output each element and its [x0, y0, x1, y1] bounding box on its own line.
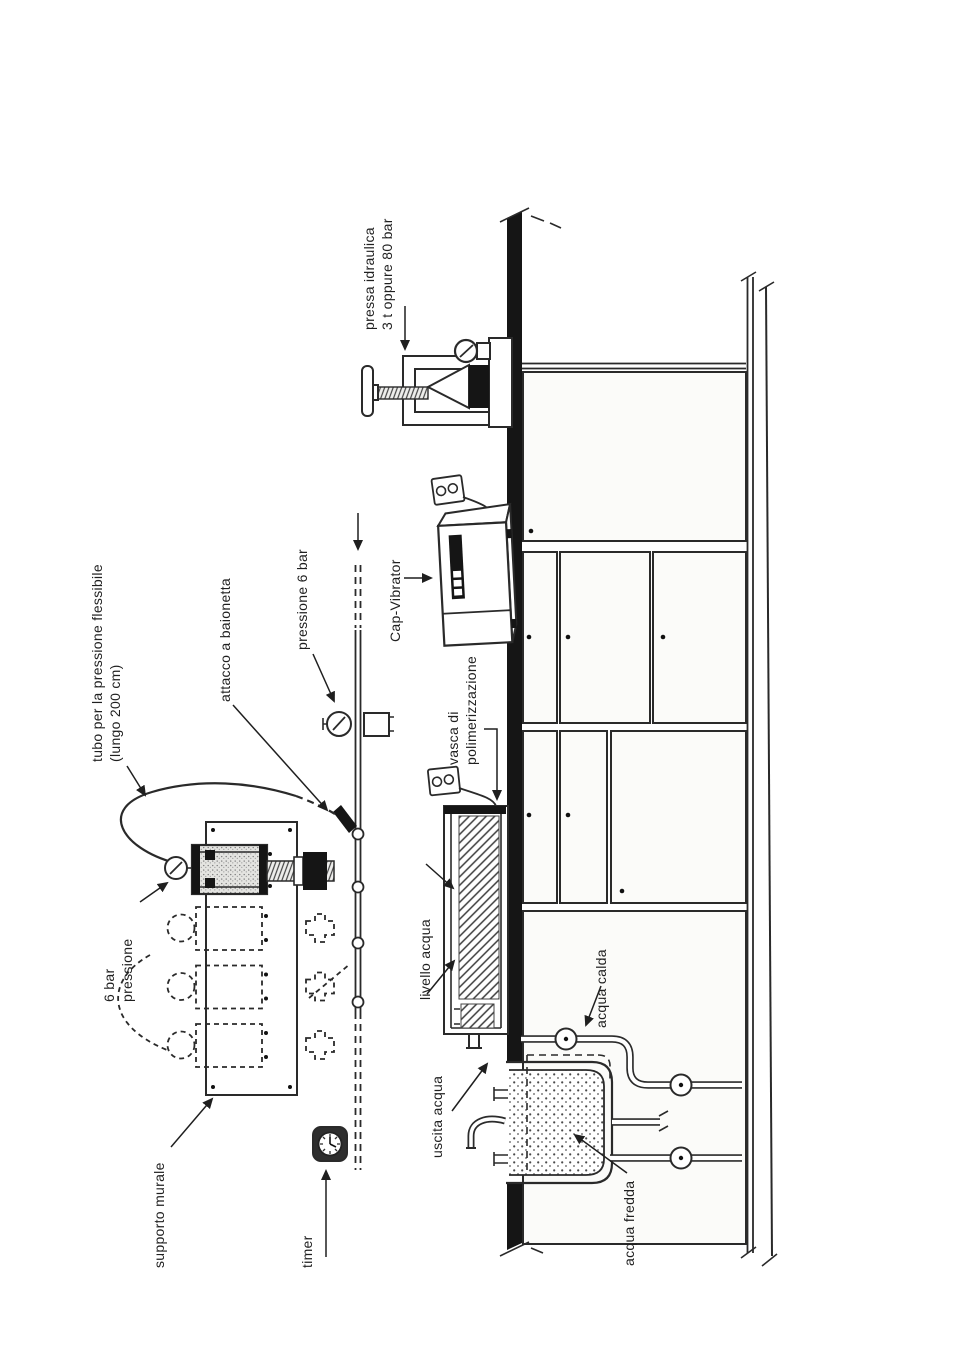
- clamp-nut: [303, 852, 327, 890]
- bayonet-socket-icon: [353, 997, 364, 1008]
- press-gauge-bracket: [477, 343, 490, 359]
- label-tubo-line1: tubo per la pressione flessibile: [89, 564, 105, 762]
- pressure-line-solid: [356, 630, 361, 1012]
- vibrator-button: [453, 580, 461, 587]
- label-vasca-line1: vasca di: [445, 711, 461, 765]
- label-vasca-line2: polimerizzazione: [463, 656, 479, 765]
- leader-supporto: [171, 1099, 212, 1147]
- lab-bench-diagram: pressa idraulica 3 t oppure 80 bar Cap-V…: [0, 0, 953, 1352]
- wall-support-drawing: [118, 822, 350, 1095]
- vibrator-button: [453, 571, 461, 578]
- label-uscita-acqua: uscita acqua: [429, 1076, 445, 1158]
- flask-press-solid: [165, 845, 334, 894]
- cabinet-door: [560, 552, 650, 723]
- arrow-tubo: [127, 766, 145, 795]
- tank-drain-tap: [469, 1034, 479, 1048]
- bayonet-socket-icon: [353, 938, 364, 949]
- vibrator-button: [454, 589, 462, 596]
- label-6-bar-line1: 6 bar: [101, 969, 117, 1002]
- arrow-pressione6: [313, 654, 334, 701]
- cap-vibrator-drawing: [437, 504, 517, 646]
- vibrator-foot: [506, 529, 511, 538]
- leader-attacco: [233, 705, 327, 810]
- leader-uscita: [452, 1064, 487, 1111]
- bayonet-connector-icon: [333, 805, 357, 833]
- label-pressa-line1: pressa idraulica: [361, 227, 377, 330]
- outlet-vibrator: [431, 475, 464, 505]
- label-cap-vibrator: Cap-Vibrator: [387, 559, 403, 642]
- pressure-line-dashed-top: [356, 565, 361, 628]
- timer-drawing: [313, 1127, 347, 1161]
- cabinet-base-line: [748, 277, 754, 1253]
- cabinet-door: [653, 552, 746, 723]
- press-back-plate: [489, 338, 512, 427]
- cabinet-door: [611, 731, 746, 903]
- outlet-tank: [428, 767, 461, 796]
- label-acqua-fredda: acqua fredda: [621, 1181, 637, 1266]
- pressure-line-dashed-bottom: [356, 1012, 361, 1170]
- regulator-body: [364, 713, 389, 736]
- hydraulic-press-drawing: [362, 338, 512, 427]
- label-6-bar-line2: pressione: [119, 939, 135, 1002]
- tank-lid: [444, 806, 506, 814]
- scanned-diagram-page: pressa idraulica 3 t oppure 80 bar Cap-V…: [0, 0, 953, 1352]
- arrow-sei-bar: [140, 883, 167, 902]
- label-timer: timer: [299, 1235, 315, 1268]
- tank-water: [459, 816, 499, 999]
- polymerization-tank-drawing: [444, 806, 508, 1048]
- tap-handles: [494, 1087, 508, 1166]
- label-attacco-baionetta: attacco a baionetta: [217, 578, 233, 702]
- cabinet-door: [523, 372, 746, 541]
- bayonet-socket-icon: [353, 882, 364, 893]
- press-jaw: [469, 365, 489, 408]
- label-tubo-line2: (lungo 200 cm): [107, 664, 123, 762]
- label-supporto-murale: supporto murale: [151, 1162, 167, 1268]
- press-screw: [374, 387, 428, 399]
- bayonet-socket-icon: [353, 829, 364, 840]
- vibrator-foot: [511, 619, 516, 628]
- label-pressa-line2: 3 t oppure 80 bar: [379, 218, 395, 330]
- sink-basin-water: [509, 1070, 604, 1175]
- tank-flask-inside: [461, 1004, 494, 1028]
- bench-end-panel-line: [522, 364, 746, 369]
- press-handle: [362, 366, 373, 416]
- pressure-line: [323, 513, 394, 1170]
- pressure-regulator-drawing: [323, 712, 394, 736]
- press-ram-cone: [428, 365, 469, 408]
- leader-vasca: [484, 729, 497, 799]
- sink-drawing: [466, 1055, 612, 1183]
- tank-power-cord: [459, 788, 496, 806]
- label-livello-acqua: livello acqua: [417, 919, 433, 1000]
- label-pressione-6-bar: pressione 6 bar: [294, 549, 310, 650]
- label-acqua-calda: acqua calda: [593, 949, 609, 1028]
